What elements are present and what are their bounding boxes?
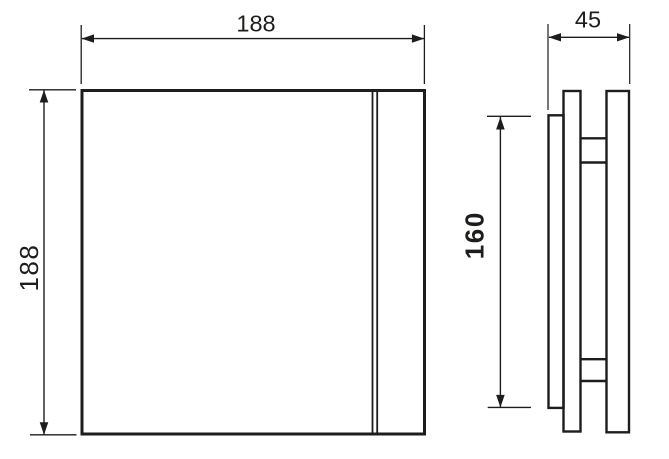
svg-text:188: 188 — [14, 244, 44, 292]
svg-text:45: 45 — [575, 7, 601, 33]
svg-text:188: 188 — [236, 10, 275, 36]
svg-text:160: 160 — [460, 211, 490, 259]
